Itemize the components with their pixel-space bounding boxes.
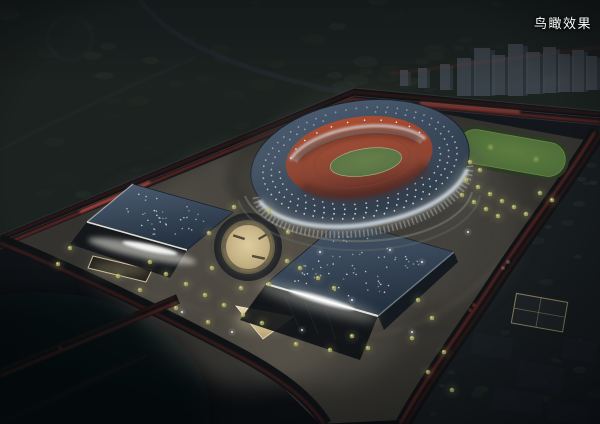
- vignette: [0, 0, 600, 424]
- aerial-rendering: [0, 0, 600, 424]
- rendering-canvas: 鸟瞰效果: [0, 0, 600, 424]
- caption-label: 鸟瞰效果: [534, 13, 592, 32]
